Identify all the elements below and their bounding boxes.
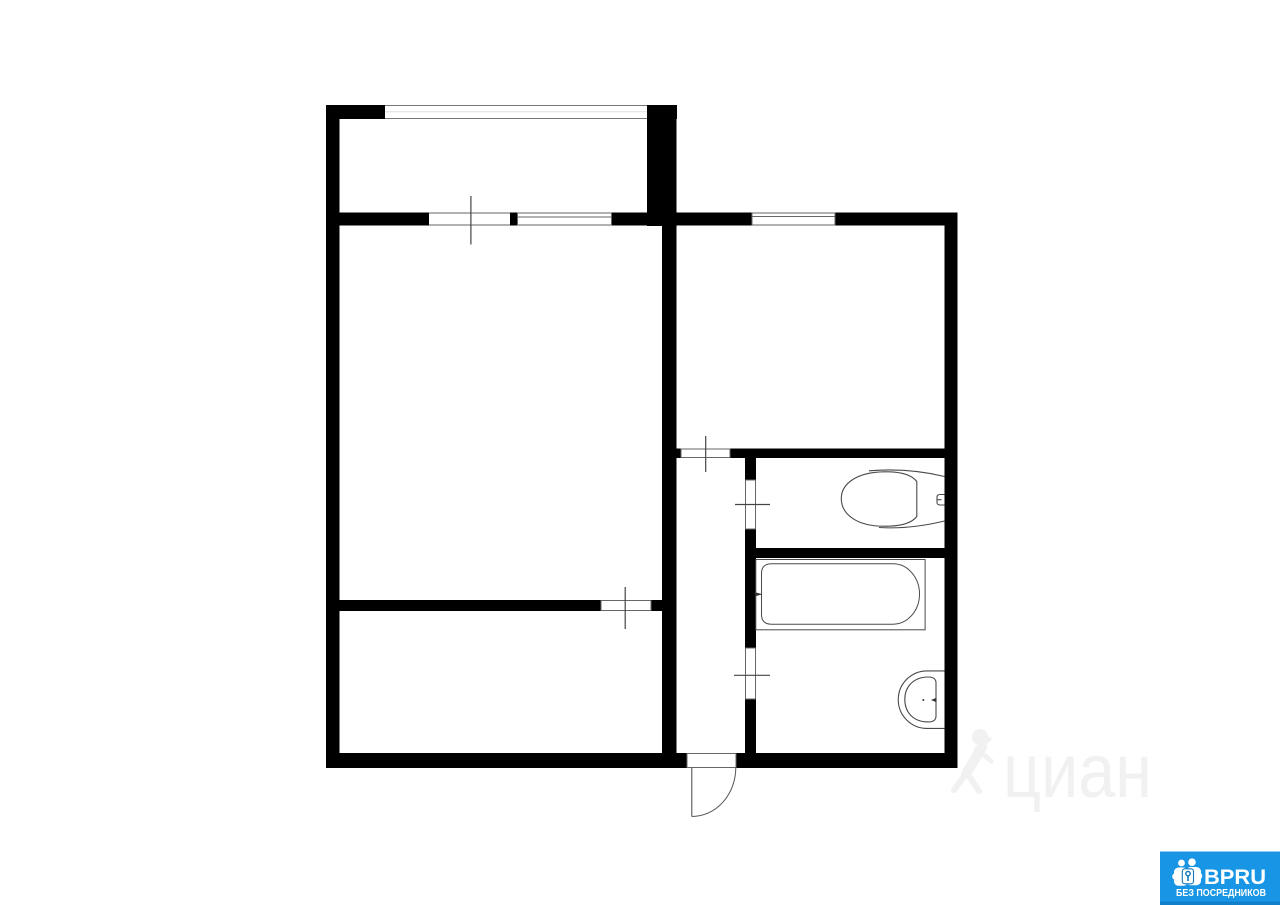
- svg-text:БЕЗ ПОСРЕДНИКОВ: БЕЗ ПОСРЕДНИКОВ: [1176, 888, 1266, 899]
- svg-text:циан: циан: [1003, 729, 1152, 814]
- svg-text:BPRU: BPRU: [1204, 865, 1266, 889]
